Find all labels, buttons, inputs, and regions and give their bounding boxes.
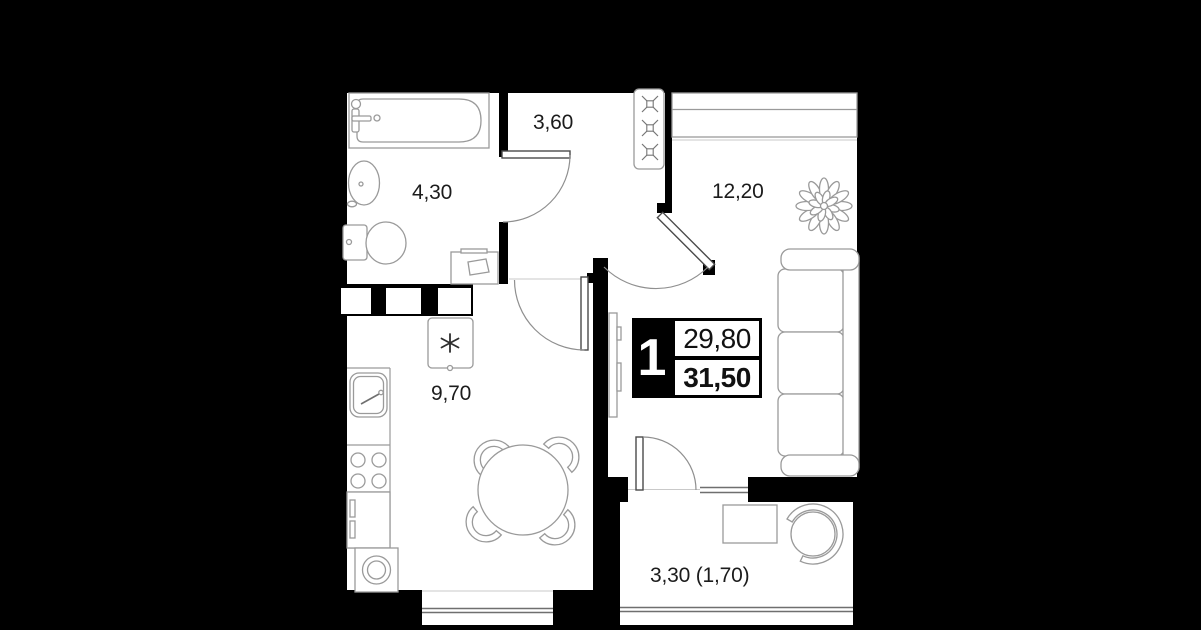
bathroom-cabinet: [451, 249, 498, 284]
balcony-area-label: 3,30 (1,70): [650, 565, 749, 586]
floor-plan-canvas: 3,60 4,30 12,20 9,70 3,30 (1,70) 1 29,80…: [0, 0, 1201, 630]
hallway-area-label: 3,60: [533, 112, 573, 133]
shaft-niche: [341, 288, 371, 314]
toilet: [343, 222, 406, 264]
kitchen-sink: [350, 373, 387, 417]
badge-areas: 29,80 31,50: [672, 318, 762, 398]
bathtub-faucet: [352, 100, 361, 109]
dining-table: [478, 445, 568, 535]
balcony-desk: [723, 505, 777, 543]
living-area-value: 29,80: [672, 318, 762, 358]
hallway-closet: [634, 89, 664, 169]
shaft-niche: [386, 288, 421, 314]
apartment-info-badge: 1 29,80 31,50: [632, 318, 762, 398]
bathtub: [349, 93, 489, 148]
washing-machine: [355, 548, 398, 592]
bathroom-area-label: 4,30: [412, 182, 452, 203]
living-room-area-label: 12,20: [712, 181, 764, 202]
living-wardrobe: [672, 93, 857, 140]
fridge: [347, 492, 390, 548]
total-area-value: 31,50: [672, 358, 762, 398]
kitchen-area-label: 9,70: [431, 383, 471, 404]
floor-plan-drawing: [0, 0, 1201, 630]
sofa: [778, 249, 859, 476]
ventilation-shaft: [428, 318, 473, 371]
shaft-niche: [438, 288, 471, 314]
room-count-badge: 1: [632, 318, 672, 398]
